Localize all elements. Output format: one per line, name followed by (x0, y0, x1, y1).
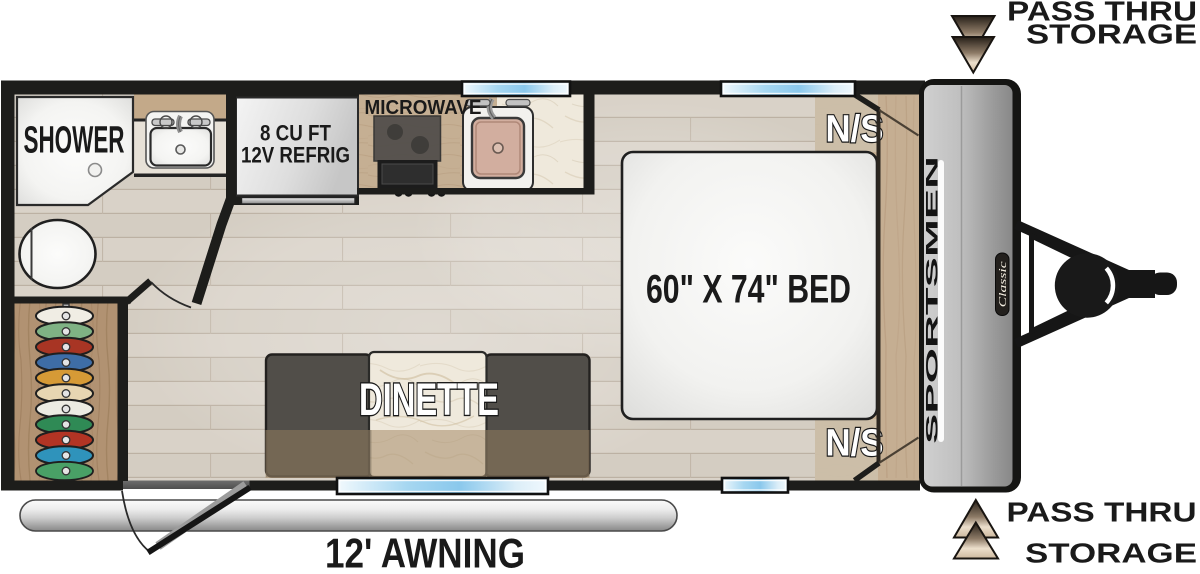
svg-text:12V REFRIG: 12V REFRIG (241, 143, 350, 168)
svg-text:PASS THRU: PASS THRU (1007, 497, 1197, 528)
svg-text:60" X 74" BED: 60" X 74" BED (646, 268, 851, 312)
svg-text:N/S: N/S (826, 423, 884, 465)
svg-text:STORAGE: STORAGE (1025, 538, 1197, 569)
svg-text:N/S: N/S (826, 109, 884, 151)
svg-text:SHOWER: SHOWER (24, 120, 125, 162)
svg-text:12' AWNING: 12' AWNING (325, 530, 525, 574)
svg-text:Classic: Classic (998, 260, 1009, 307)
svg-text:STORAGE: STORAGE (1026, 19, 1197, 50)
svg-text:DINETTE: DINETTE (359, 374, 499, 425)
svg-text:MICROWAVE: MICROWAVE (365, 97, 482, 119)
svg-text:SPORTSMEN: SPORTSMEN (923, 156, 942, 444)
